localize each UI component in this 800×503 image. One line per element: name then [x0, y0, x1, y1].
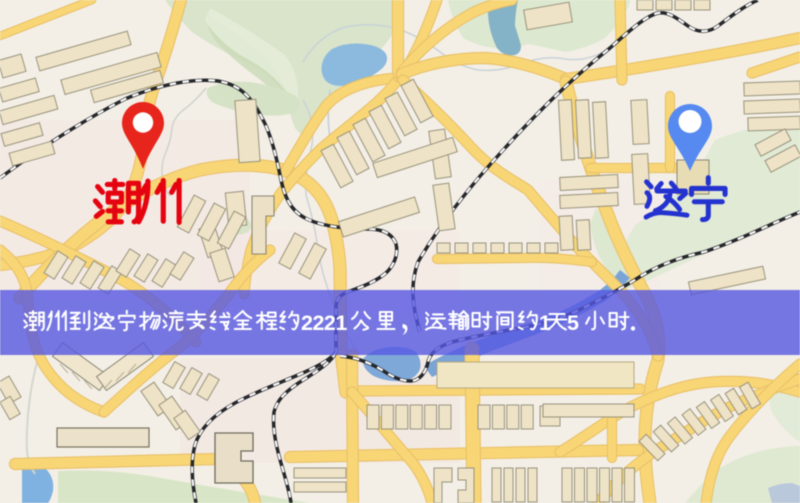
- svg-text:2221: 2221: [301, 311, 347, 335]
- svg-text:5: 5: [567, 311, 579, 335]
